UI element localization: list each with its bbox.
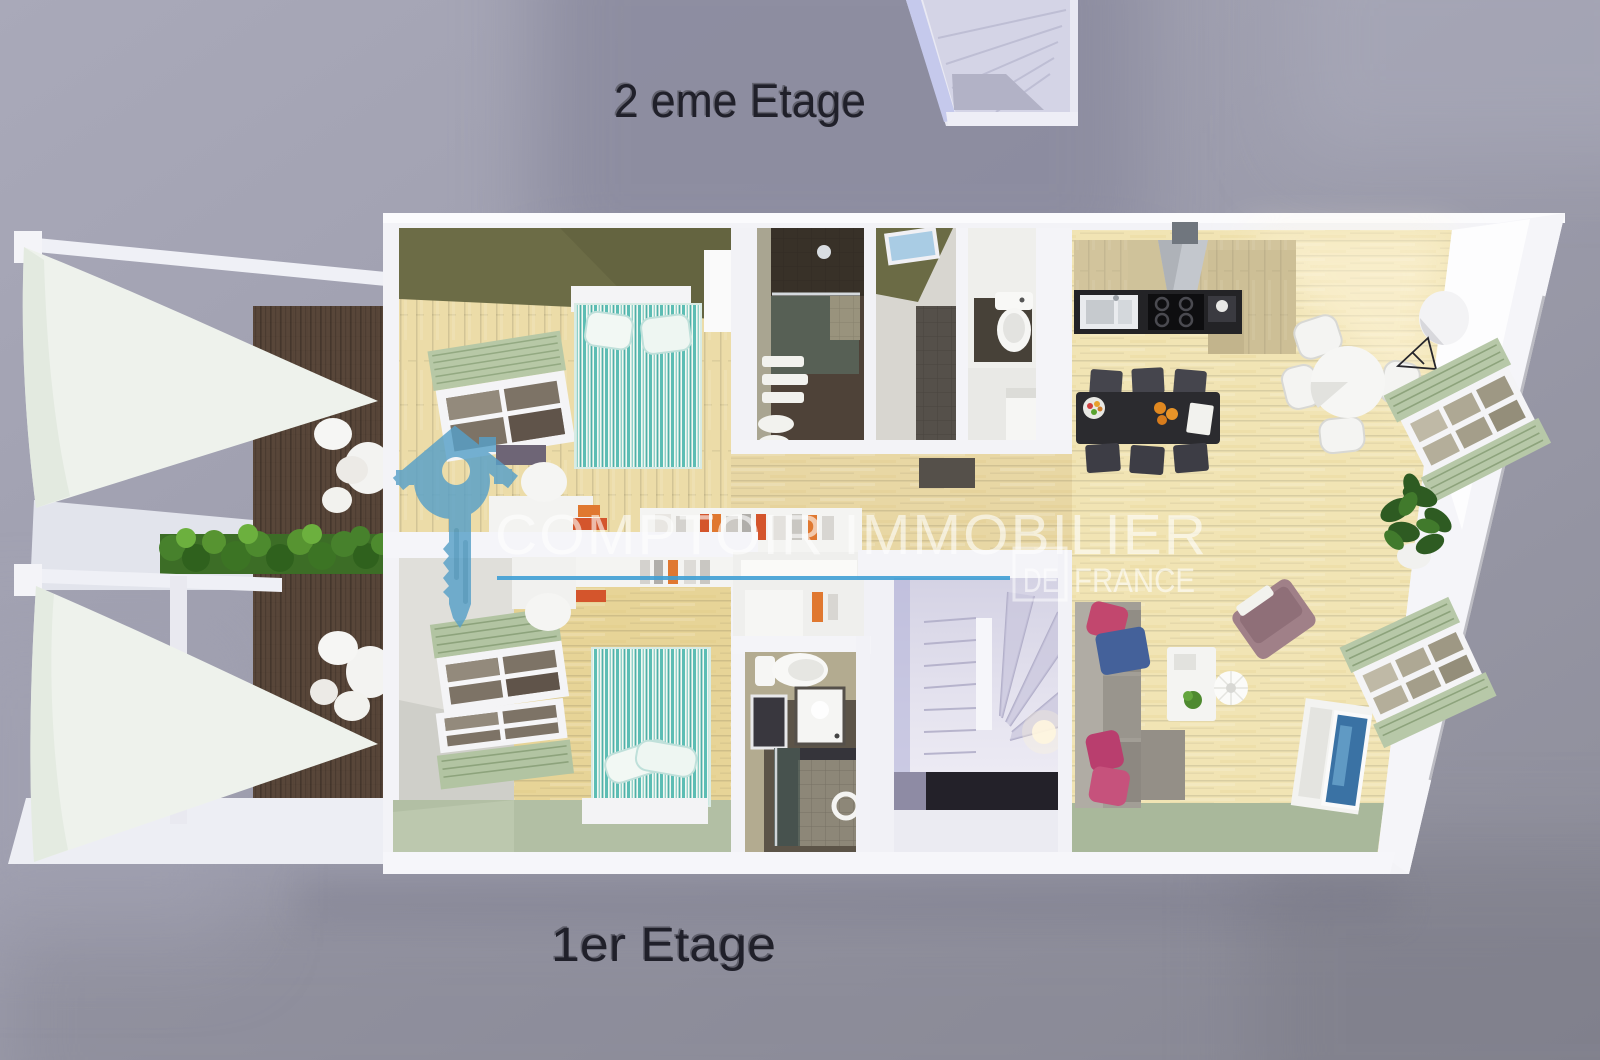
- svg-text:FRANCE: FRANCE: [1074, 562, 1195, 600]
- svg-text:DE: DE: [1023, 562, 1059, 600]
- svg-text:COMPTOIR IMMOBILIER: COMPTOIR IMMOBILIER: [495, 503, 1208, 567]
- svg-text:2 eme Etage: 2 eme Etage: [614, 74, 866, 127]
- svg-text:1er Etage: 1er Etage: [551, 919, 776, 972]
